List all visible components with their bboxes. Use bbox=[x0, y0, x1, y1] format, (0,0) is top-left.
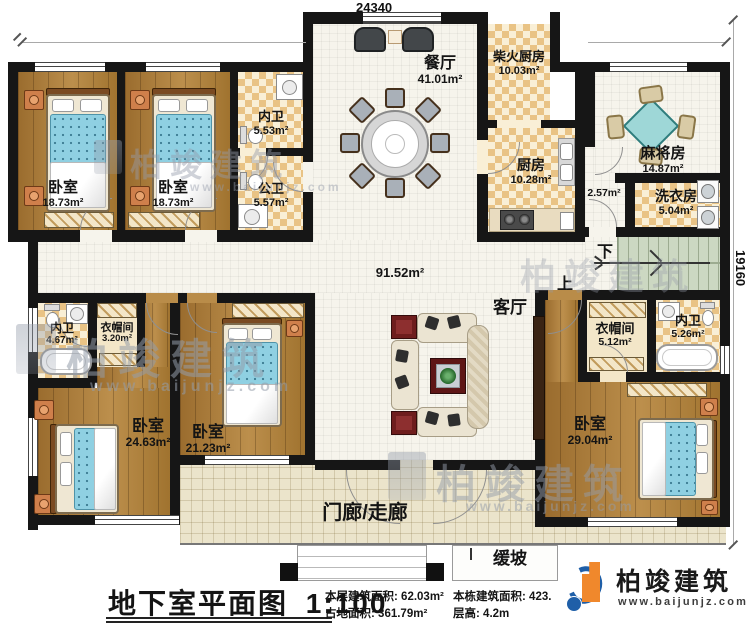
room-label-passage: 2.57m² bbox=[578, 188, 630, 200]
room-label-bedroom-tl1: 卧室18.73m² bbox=[18, 180, 108, 209]
mahjong-chair bbox=[638, 84, 664, 104]
dimension-line bbox=[22, 42, 306, 43]
door-gap bbox=[240, 148, 266, 156]
wall bbox=[585, 72, 595, 147]
bed-pillow bbox=[60, 432, 72, 456]
wall bbox=[117, 62, 125, 240]
wall bbox=[305, 293, 315, 465]
armchair bbox=[402, 27, 434, 52]
chaise-lounge bbox=[467, 325, 489, 429]
nightstand bbox=[286, 320, 303, 337]
room-label-kitchen: 厨房10.28m² bbox=[488, 158, 574, 186]
kitchen-appliance bbox=[560, 212, 574, 230]
room-label-living: 客厅 bbox=[480, 298, 540, 317]
bed-pillow bbox=[186, 99, 208, 112]
stairs-down-label: 下 bbox=[597, 238, 613, 262]
nightstand bbox=[700, 398, 718, 416]
room-label-cloak-right: 衣帽间5.12m² bbox=[584, 322, 646, 348]
window bbox=[588, 517, 677, 527]
room-label-bedroom-br: 卧室29.04m² bbox=[545, 416, 635, 447]
sofa-pillow bbox=[447, 413, 461, 427]
title-text: 地下室平面图 bbox=[108, 588, 288, 619]
bed-pillow bbox=[80, 99, 102, 112]
door-gap bbox=[589, 227, 616, 237]
room-label-bath-public: 公卫5.57m² bbox=[241, 182, 301, 209]
dimension-depth: 19160 bbox=[733, 250, 748, 286]
bed-pillow bbox=[696, 452, 708, 474]
wall bbox=[230, 62, 238, 240]
dining-table-center bbox=[385, 134, 405, 154]
door-gap bbox=[497, 120, 541, 128]
porch-column bbox=[280, 563, 298, 581]
door-gap bbox=[477, 140, 488, 174]
logo-website: www.baijunjz.com bbox=[618, 596, 748, 608]
hallway-floor bbox=[38, 240, 585, 293]
stove-burner bbox=[504, 214, 515, 225]
dimension-width: 24340 bbox=[356, 0, 392, 15]
dining-chair bbox=[340, 133, 360, 153]
dimension-line bbox=[588, 42, 726, 43]
nightstand bbox=[130, 90, 150, 110]
door-gap bbox=[185, 230, 217, 242]
sofa-pillow bbox=[395, 349, 409, 363]
door-gap bbox=[187, 293, 217, 303]
room-label-cloak-left: 衣帽间3.20m² bbox=[93, 322, 141, 345]
toilet-tank bbox=[700, 302, 715, 309]
room-label-bath-inner-right: 内卫5.26m² bbox=[658, 314, 718, 340]
wardrobe-cloak-left-bottom bbox=[99, 353, 137, 366]
end-table bbox=[391, 411, 417, 435]
room-label-porch: 门廊/走廊 bbox=[290, 502, 440, 524]
dining-chair bbox=[430, 133, 450, 153]
bed-pillow bbox=[60, 462, 72, 486]
stat-building-area: 本栋建筑面积: 423. bbox=[453, 589, 551, 606]
wall bbox=[8, 62, 18, 242]
logo: 柏竣建筑 www.baijunjz.com bbox=[568, 560, 748, 620]
stat-footprint: 占地面积: 361.79m² bbox=[325, 606, 444, 623]
stat-floor-height: 层高: 4.2m bbox=[453, 606, 551, 623]
window bbox=[720, 346, 730, 374]
wash-basin bbox=[244, 209, 260, 225]
wash-basin bbox=[282, 80, 297, 95]
bed-pillow bbox=[52, 99, 74, 112]
wall bbox=[477, 12, 488, 242]
title-underline bbox=[106, 617, 332, 619]
bathtub bbox=[40, 348, 92, 375]
window bbox=[28, 418, 38, 476]
window bbox=[35, 62, 105, 72]
bed-blanket bbox=[642, 422, 666, 496]
bedroom-bl-floor2 bbox=[97, 367, 170, 388]
armchair bbox=[354, 27, 386, 52]
mahjong-chair bbox=[676, 114, 696, 140]
wall bbox=[647, 300, 656, 372]
wardrobe-cloak-left-top bbox=[97, 303, 137, 318]
stat-floor-area: 本层建筑面积: 62.03m² bbox=[325, 589, 444, 606]
wall bbox=[433, 460, 545, 470]
door-gap bbox=[80, 230, 112, 242]
room-label-bath-inner-top: 内卫5.53m² bbox=[241, 110, 301, 137]
porch-column bbox=[426, 563, 444, 581]
logo-badge-icon bbox=[566, 596, 582, 612]
window bbox=[205, 455, 289, 465]
wash-basin bbox=[70, 307, 84, 321]
nightstand bbox=[701, 500, 718, 515]
stats-column-2: 本栋建筑面积: 423. 层高: 4.2m bbox=[453, 589, 551, 623]
bed-pillow bbox=[158, 99, 180, 112]
dining-chair bbox=[385, 88, 405, 108]
room-label-living-area: 91.52m² bbox=[355, 266, 445, 281]
window bbox=[146, 62, 220, 72]
bed-pillow bbox=[696, 424, 708, 446]
wardrobe-bedroom-br bbox=[627, 383, 707, 397]
side-table bbox=[388, 30, 402, 44]
bed-pillow bbox=[252, 328, 272, 340]
room-label-bedroom-bm: 卧室21.23m² bbox=[160, 424, 256, 455]
logo-name: 柏竣建筑 bbox=[616, 562, 732, 598]
entry-steps bbox=[297, 545, 427, 581]
wall bbox=[315, 460, 400, 470]
wall bbox=[8, 230, 313, 242]
window bbox=[610, 62, 687, 72]
plant bbox=[440, 368, 456, 384]
stairs-arrow bbox=[594, 262, 710, 264]
door-gap bbox=[146, 293, 178, 303]
toilet-tank bbox=[44, 304, 60, 311]
stairs-up-label: 上 bbox=[557, 270, 573, 294]
room-label-bath-inner-left: 内卫4.67m² bbox=[34, 322, 90, 347]
title-underline bbox=[106, 621, 332, 623]
wall bbox=[575, 70, 585, 242]
wardrobe-cloak-right-top bbox=[589, 302, 646, 318]
dining-chair bbox=[385, 178, 405, 198]
bed-blanket bbox=[226, 384, 278, 424]
wall bbox=[28, 378, 95, 388]
wall bbox=[303, 12, 313, 242]
ramp-label: 缓坡 bbox=[480, 549, 540, 569]
room-label-bedroom-tl2: 卧室18.73m² bbox=[128, 180, 218, 209]
door-gap bbox=[600, 372, 626, 382]
tv-cabinet bbox=[533, 316, 545, 440]
bathtub bbox=[656, 344, 718, 371]
mahjong-chair bbox=[606, 114, 625, 140]
end-table bbox=[391, 315, 417, 339]
door-gap bbox=[303, 162, 313, 192]
corner-tick bbox=[13, 33, 21, 41]
stove-burner bbox=[519, 214, 530, 225]
nightstand bbox=[34, 400, 54, 420]
stats-column-1: 本层建筑面积: 62.03m² 占地面积: 361.79m² bbox=[325, 589, 444, 623]
room-label-firewood-kitchen: 柴火厨房10.03m² bbox=[478, 50, 560, 77]
room-label-mahjong: 麻将房14.87m² bbox=[618, 146, 708, 175]
room-label-laundry: 洗衣房5.04m² bbox=[636, 189, 716, 217]
bed-pillow bbox=[228, 328, 248, 340]
window bbox=[95, 515, 179, 525]
floor-plan: 下 上 缓坡 卧室18.73m² 卧室18.73m² 内卫5.53m² 公卫5.… bbox=[0, 0, 750, 629]
nightstand bbox=[24, 90, 44, 110]
wardrobe-bedroom-bm bbox=[232, 303, 304, 318]
wall bbox=[477, 232, 585, 242]
room-label-dining: 餐厅41.01m² bbox=[395, 55, 485, 86]
ramp-arrow bbox=[470, 548, 472, 560]
